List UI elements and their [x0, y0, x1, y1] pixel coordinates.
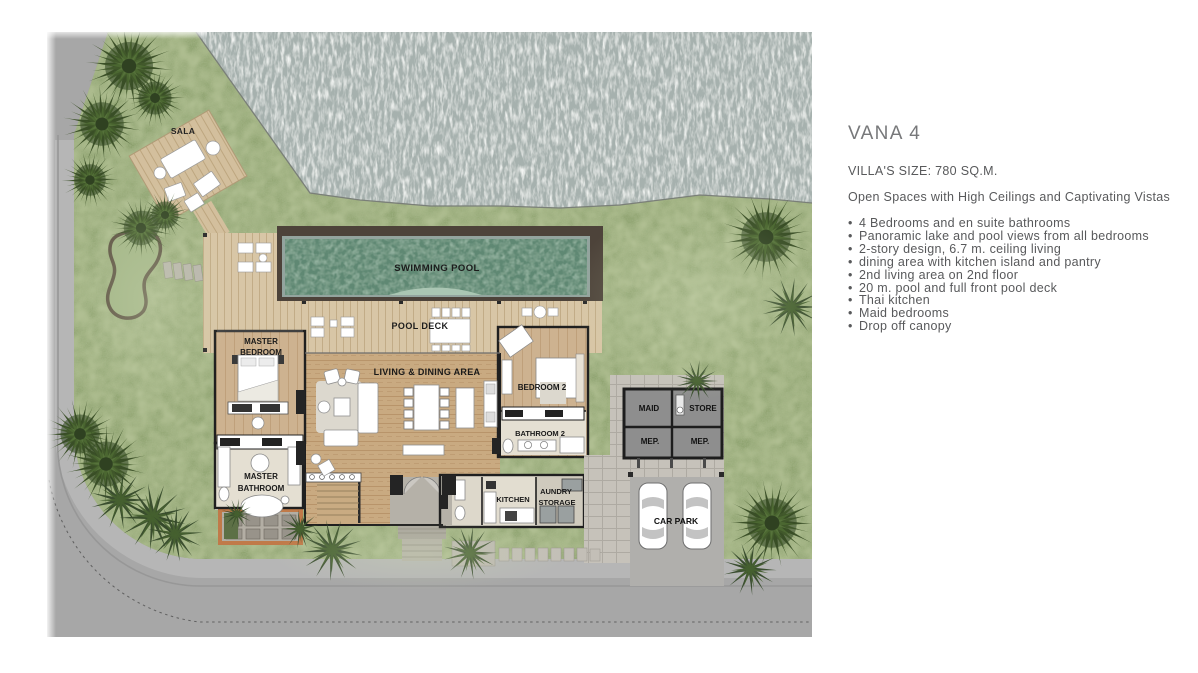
svg-text:BEDROOM 2: BEDROOM 2: [518, 383, 567, 392]
svg-text:BEDROOM: BEDROOM: [240, 348, 282, 357]
svg-text:AUNDRY: AUNDRY: [540, 487, 572, 496]
svg-text:POOL DECK: POOL DECK: [392, 321, 449, 331]
svg-text:MAID: MAID: [639, 404, 660, 413]
svg-text:MEP.: MEP.: [691, 437, 710, 446]
svg-text:MEP.: MEP.: [641, 437, 660, 446]
svg-text:SWIMMING POOL: SWIMMING POOL: [394, 263, 479, 274]
svg-text:BATHROOM: BATHROOM: [238, 484, 285, 493]
svg-text:KITCHEN: KITCHEN: [496, 495, 529, 504]
svg-text:MASTER: MASTER: [244, 472, 278, 481]
svg-text:LIVING & DINING AREA: LIVING & DINING AREA: [374, 367, 481, 377]
svg-text:CAR PARK: CAR PARK: [654, 516, 699, 526]
svg-text:STORE: STORE: [689, 404, 717, 413]
svg-text:MASTER: MASTER: [244, 337, 278, 346]
svg-text:STORAGE: STORAGE: [539, 498, 576, 507]
svg-text:SALA: SALA: [171, 126, 195, 136]
svg-text:BATHROOM 2: BATHROOM 2: [515, 429, 565, 438]
